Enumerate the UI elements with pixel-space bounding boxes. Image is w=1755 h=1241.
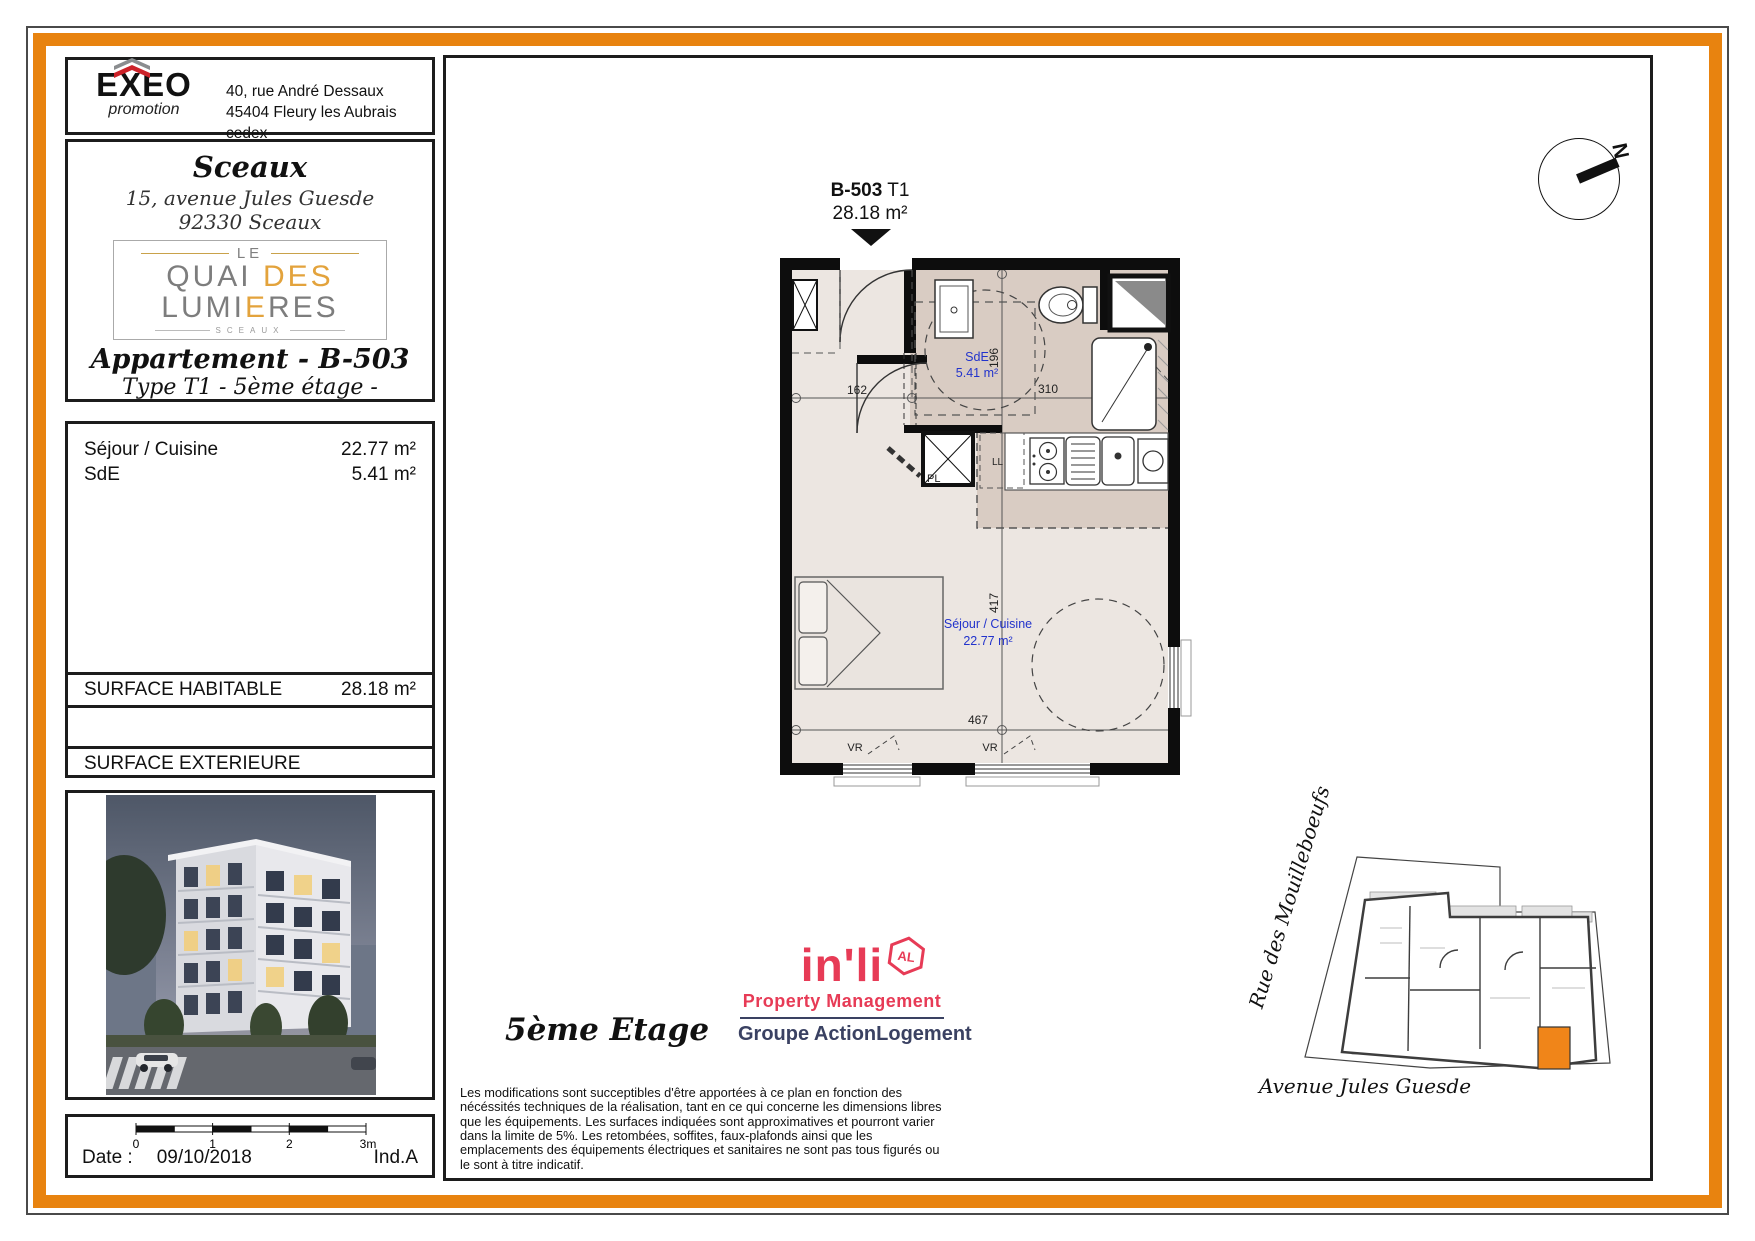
inli-tagline: Property Management [738,991,946,1012]
street-label-bottom: Avenue Jules Guesde [1230,1074,1500,1098]
promoter-header-box: EXEO promotion 40, rue André Dessaux 454… [65,57,435,135]
inli-logo: in'li AL Property Management Groupe Acti… [738,942,946,1046]
surface-exterieure-label: SURFACE EXTERIEURE [84,753,300,775]
inli-name: in'li [801,939,883,991]
oven-unit [1138,439,1168,483]
qdl-des: DES [263,260,334,293]
floorplan-sheet: EXEO promotion 40, rue André Dessaux 454… [0,0,1755,1241]
bathroom-sink [935,280,973,338]
highlighted-unit [1538,1027,1570,1069]
date-label: Date : [82,1147,133,1169]
qdl-line2: QUAI DES [166,262,333,293]
cooktop [1030,438,1064,484]
entrance-arrow-icon [851,229,891,246]
apartment-subtitle: Type T1 - 5ème étage - [68,375,432,400]
room-sde-area: 5.41 m² [956,366,998,380]
label-pl: PL [927,473,940,485]
qdl-line3: LUMIERES [161,293,338,324]
scale-date-box: 0 1 2 3m Date : 09/10/2018 Ind.A [65,1114,435,1178]
date-value: 09/10/2018 [157,1147,252,1169]
qdl-res: RES [268,291,339,324]
shower [1092,338,1168,430]
program-address2: 92330 Sceaux [68,210,432,234]
label-vr-1: VR [847,742,862,754]
surface-row-label: Séjour / Cuisine [84,439,218,461]
disclaimer-text: Les modifications sont succeptibles d'êt… [460,1086,952,1172]
dim-310: 310 [1038,382,1058,396]
bed [795,577,943,689]
exeo-chevrons-icon [110,56,154,89]
drainer [1066,437,1100,485]
promoter-address: 40, rue André Dessaux 45404 Fleury les A… [226,82,432,145]
unit-area: 28.18 m² [770,203,970,226]
inli-al-badge-icon: AL [884,934,928,984]
floor-plan: 162 310 196 417 467 SdE 5.41 m² Séjour /… [780,258,1192,788]
surface-row: SdE 5.41 m² [68,461,432,486]
divider [68,746,432,749]
room-sde-name: SdE [965,350,989,364]
exeo-logo: EXEO promotion [84,68,204,119]
dim-162: 162 [847,383,867,397]
qdl-e: E [245,291,268,324]
qdl-sceaux: SCEAUX [155,326,345,335]
surface-row-value: 22.77 m² [341,439,416,461]
promoter-address-line1: 40, rue André Dessaux [226,82,432,103]
floor-label: 5ème Etage [505,1012,709,1048]
label-vr-2: VR [982,742,997,754]
surface-table-box: Séjour / Cuisine 22.77 m² SdE 5.41 m² SU… [65,421,435,778]
dim-417: 417 [987,593,1001,613]
room-sejour-name: Séjour / Cuisine [944,617,1032,631]
program-address1: 15, avenue Jules Guesde [68,186,432,210]
site-plan [1290,848,1620,1078]
inli-divider [740,1017,944,1019]
qdl-quai: QUAI [166,260,251,293]
date-row: Date : 09/10/2018 Ind.A [82,1147,418,1169]
window [834,763,920,786]
photo-box [65,790,435,1100]
exeo-logo-sub: promotion [84,101,204,119]
surface-habitable-label: SURFACE HABITABLE [84,679,282,701]
unit-label: B-503 T1 28.18 m² [770,180,970,226]
surface-row-value: 5.41 m² [352,464,416,486]
inli-badge-text: AL [897,948,916,965]
divider [68,705,432,708]
apartment-title: Appartement - B-503 [68,344,432,375]
quai-des-lumieres-logo: LE QUAI DES LUMIERES SCEAUX [113,240,387,340]
building-photo [106,795,376,1095]
compass-needle [1576,158,1619,184]
index-value: Ind.A [374,1147,418,1169]
window [1168,640,1191,716]
surface-row: Séjour / Cuisine 22.77 m² [68,436,432,461]
label-ll: LL [992,457,1004,468]
toilet [1039,287,1097,323]
program-box: Sceaux 15, avenue Jules Guesde 92330 Sce… [65,139,435,402]
inli-group: Groupe ActionLogement [738,1023,946,1046]
kitchen-counter [980,433,1168,490]
surface-row-label: SdE [84,464,120,486]
technical-shaft [1110,276,1168,330]
surface-habitable-row: SURFACE HABITABLE 28.18 m² [68,676,432,704]
dim-196: 196 [987,348,1001,368]
kitchen-sink [1102,437,1134,485]
unit-type: T1 [887,180,909,201]
divider [68,672,432,675]
window [966,763,1099,786]
surface-habitable-value: 28.18 m² [341,679,416,701]
dim-467: 467 [968,713,988,727]
room-sejour-area: 22.77 m² [963,634,1012,648]
program-city: Sceaux [68,150,432,184]
qdl-lumi: LUMI [161,291,245,324]
entry-closet [793,280,817,330]
unit-number: B-503 [831,180,883,201]
surface-exterieure-row: SURFACE EXTERIEURE [68,750,432,778]
